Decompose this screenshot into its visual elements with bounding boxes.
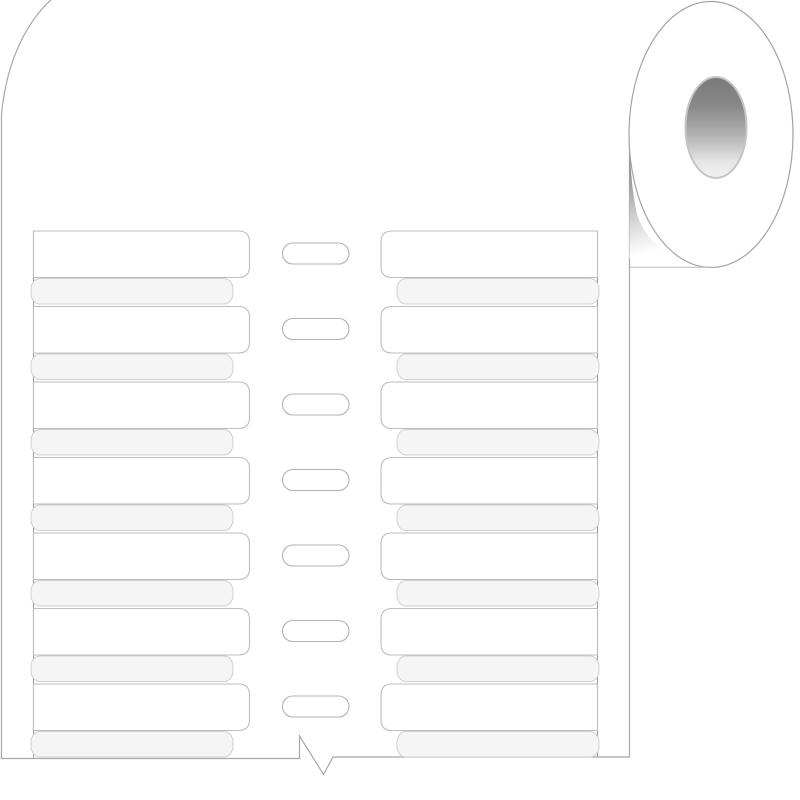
feed-slot [283, 319, 350, 340]
sleeve-label-left [34, 533, 250, 580]
liner-band-right [397, 656, 599, 682]
feed-slot [283, 243, 350, 264]
liner-band-right [397, 430, 599, 456]
feed-slot [283, 470, 350, 491]
feed-slot [283, 394, 350, 415]
feed-slot [283, 696, 350, 717]
label-roll-illustration [0, 0, 800, 800]
liner-band-right [397, 354, 599, 380]
sleeve-label-left [34, 458, 250, 505]
sleeve-label-left [34, 307, 250, 354]
liner-band-left [31, 430, 233, 456]
roll-core [686, 77, 747, 178]
liner-band-left [31, 505, 233, 531]
sleeve-label-left [34, 382, 250, 429]
feed-slot [283, 545, 350, 566]
sleeve-label-right [381, 609, 598, 656]
liner-band-left [31, 656, 233, 682]
feed-slot [283, 621, 350, 642]
liner-band-right [397, 581, 599, 607]
liner-band-left [31, 732, 233, 758]
liner-band-right [397, 505, 599, 531]
sleeve-label-left [34, 684, 250, 731]
sleeve-label-left [34, 231, 250, 278]
liner-band-left [31, 581, 233, 607]
sleeve-label-right [381, 533, 598, 580]
sleeve-label-right [381, 684, 598, 731]
sleeve-label-right [381, 231, 598, 278]
sleeve-label-right [381, 458, 598, 505]
liner-band-right [397, 732, 599, 758]
sleeve-label-right [381, 382, 598, 429]
liner-band-left [31, 354, 233, 380]
liner-band-left [31, 279, 233, 305]
sleeve-label-left [34, 609, 250, 656]
liner-band-right [397, 279, 599, 305]
sleeve-label-right [381, 307, 598, 354]
